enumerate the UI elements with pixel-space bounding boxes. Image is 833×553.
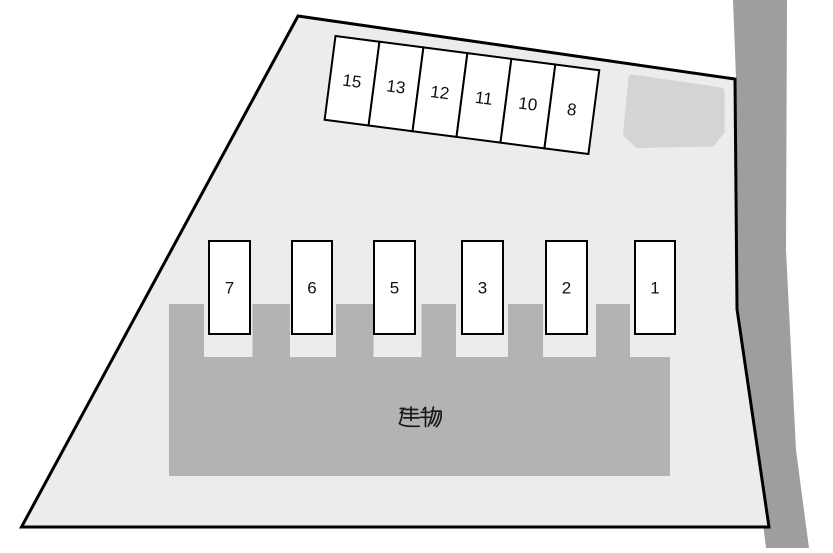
svg-text:15: 15 xyxy=(341,71,362,92)
svg-text:11: 11 xyxy=(474,88,494,109)
svg-text:7: 7 xyxy=(225,279,234,298)
svg-text:10: 10 xyxy=(517,93,538,114)
svg-text:3: 3 xyxy=(478,279,487,298)
svg-text:1: 1 xyxy=(650,279,659,298)
svg-text:2: 2 xyxy=(562,279,571,298)
svg-text:12: 12 xyxy=(429,82,450,103)
svg-text:5: 5 xyxy=(390,279,399,298)
svg-text:6: 6 xyxy=(307,279,316,298)
svg-text:13: 13 xyxy=(385,76,406,97)
